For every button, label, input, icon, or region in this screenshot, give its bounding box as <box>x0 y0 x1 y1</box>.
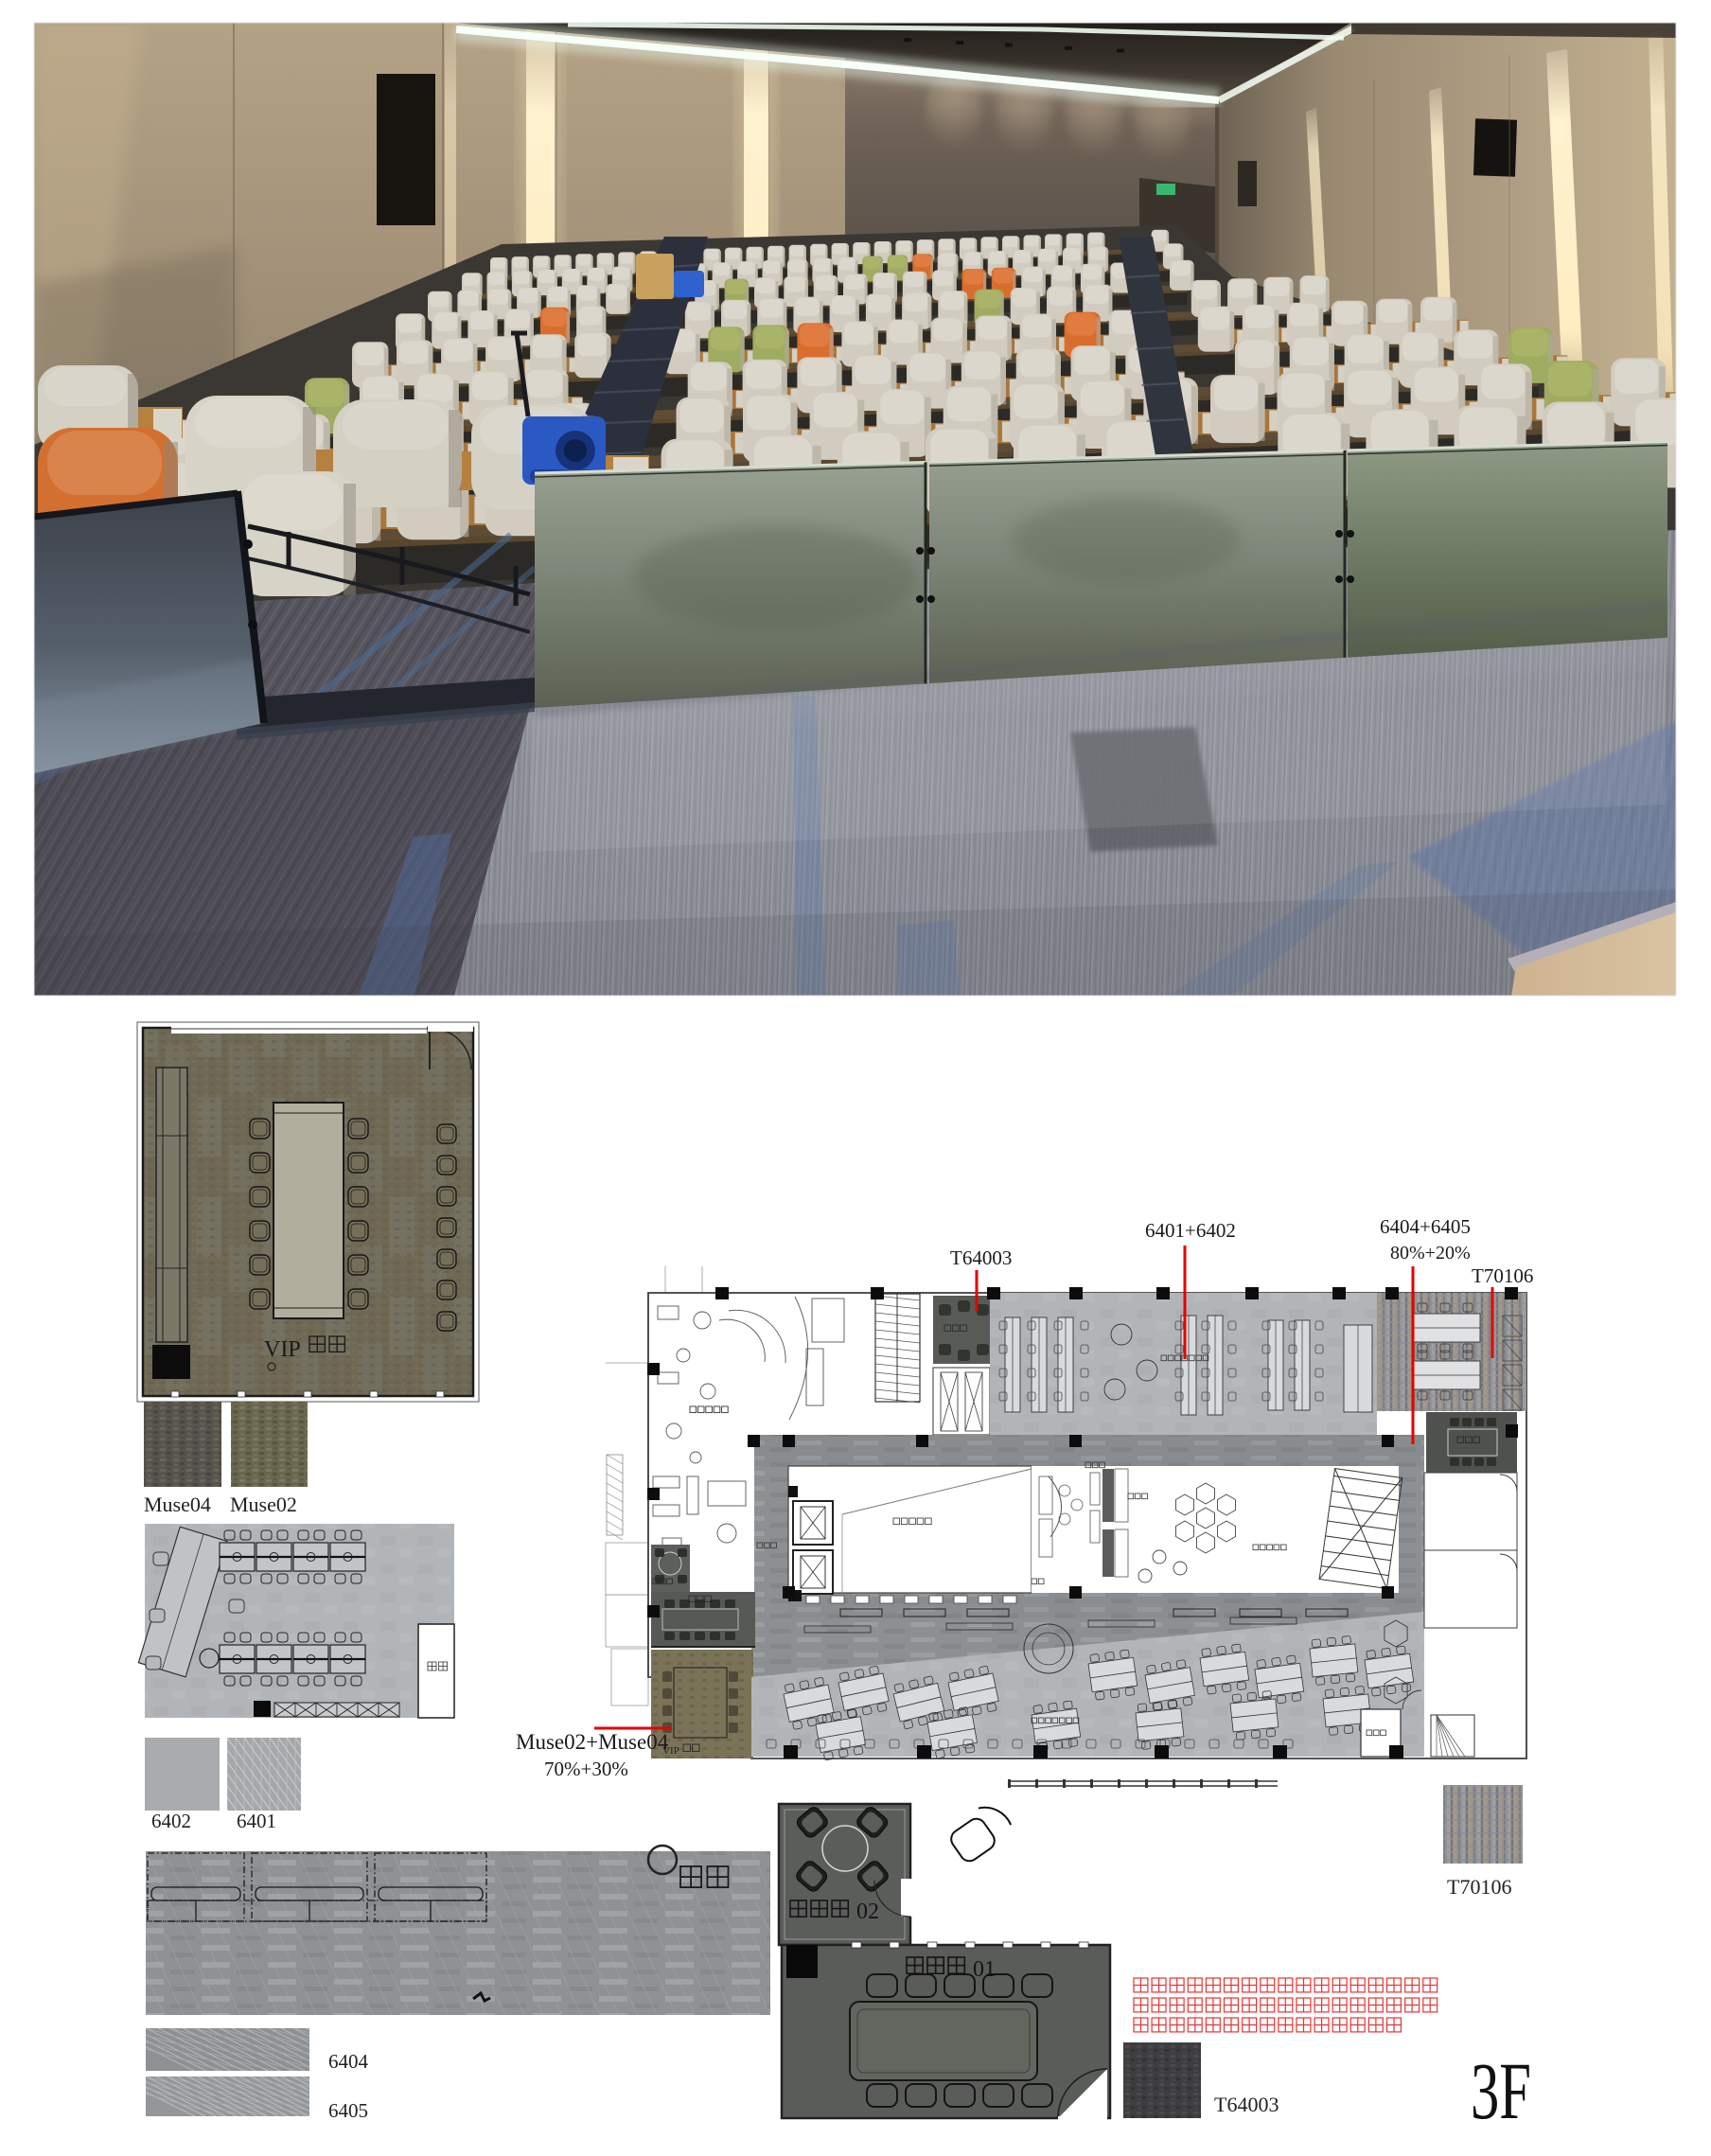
svg-text:6404: 6404 <box>328 2050 369 2073</box>
svg-text:6405: 6405 <box>328 2099 368 2122</box>
svg-text:01: 01 <box>973 1957 996 1982</box>
svg-text:T70106: T70106 <box>1447 1875 1511 1899</box>
svg-text:3F: 3F <box>1471 2045 1531 2136</box>
svg-text:T64003: T64003 <box>1214 2093 1279 2116</box>
svg-text:VIP: VIP <box>264 1337 301 1362</box>
svg-text:6401: 6401 <box>237 1810 276 1832</box>
svg-text:6402: 6402 <box>151 1810 191 1832</box>
svg-text:Muse02+Muse04: Muse02+Muse04 <box>516 1730 669 1754</box>
svg-text:02: 02 <box>856 1900 879 1924</box>
svg-text:6404+6405: 6404+6405 <box>1380 1215 1471 1238</box>
svg-text:80%+20%: 80%+20% <box>1390 1243 1471 1264</box>
svg-text:6401+6402: 6401+6402 <box>1145 1219 1236 1242</box>
svg-text:70%+30%: 70%+30% <box>544 1758 628 1780</box>
svg-text:Muse02: Muse02 <box>230 1493 297 1516</box>
svg-text:Muse04: Muse04 <box>144 1493 211 1516</box>
svg-text:T64003: T64003 <box>950 1246 1012 1269</box>
svg-text:T70106: T70106 <box>1472 1264 1533 1287</box>
